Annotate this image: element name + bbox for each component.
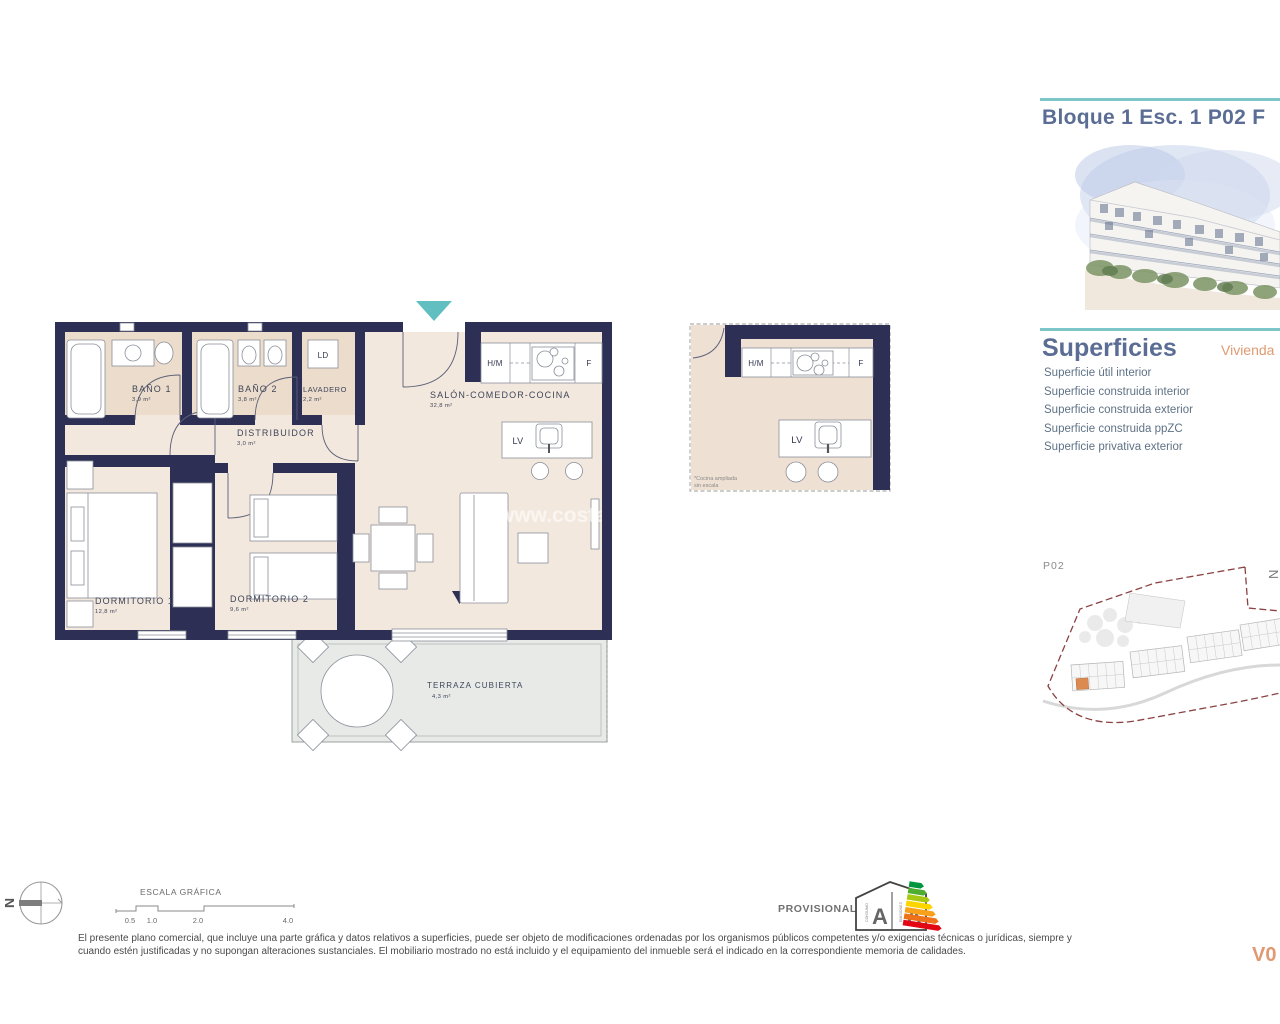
compass-north-letter: N	[5, 898, 17, 908]
bath2-label: BAÑO 2	[238, 384, 278, 394]
superficies-column-label: Vivienda	[1221, 342, 1274, 358]
superficies-item: Superficie construida ppZC	[1044, 420, 1193, 439]
siteplan-north-icon: N	[1266, 570, 1280, 579]
superficies-heading: Superficies	[1042, 334, 1177, 363]
siteplan-cluster	[1240, 617, 1280, 651]
living-label: SALÓN-COMEDOR-COCINA	[430, 390, 571, 400]
north-compass: N	[5, 878, 75, 933]
bath2-area: 3,8 m²	[238, 397, 257, 403]
detail-counter: H/M F	[742, 348, 873, 377]
superficies-item: Superficie construida interior	[1044, 383, 1193, 402]
disclaimer-line1: El presente plano comercial, que incluye…	[78, 933, 1072, 944]
emisiones-label: EMISIONES	[899, 901, 903, 922]
energy-letter-left: A	[872, 904, 888, 929]
terrace: TERRAZA CUBIERTA 4,3 m²	[292, 631, 607, 750]
laundry-fixtures: LD	[308, 340, 338, 368]
energy-certificate-icon: CONSUMO A EMISIONES A	[846, 874, 946, 936]
living-area: 32,8 m²	[430, 403, 452, 409]
disclaimer-line2: cuando estén justificadas y no supongan …	[78, 946, 966, 957]
scale-bar: ESCALA GRÁFICA 0.5 1.0 2.0 4.0	[108, 882, 318, 930]
laundry-label: LAVADERO	[303, 385, 347, 394]
bath1-area: 3,9 m²	[132, 397, 151, 403]
detail-fridge-label: F	[858, 359, 863, 368]
detail-note-line1: *Cocina ampliada	[694, 476, 738, 482]
header-rule	[1040, 98, 1280, 101]
terrace-label: TERRAZA CUBIERTA	[427, 681, 523, 690]
detail-oven-label: H/M	[748, 359, 764, 368]
version-label: V0	[1252, 944, 1280, 967]
scalebar-title: ESCALA GRÁFICA	[140, 887, 222, 897]
superficies-item: Superficie construida exterior	[1044, 401, 1193, 420]
kitchen-detail-plan: H/M F LV *Cocina ampliada sin escala	[687, 322, 895, 498]
ld-label: LD	[318, 351, 329, 360]
terrace-area: 4,3 m²	[432, 694, 451, 700]
superficies-item: Superficie privativa exterior	[1044, 438, 1193, 457]
superficies-list: Superficie útil interior Superficie cons…	[1044, 364, 1193, 457]
laundry-area: 2,2 m²	[303, 397, 322, 403]
scalebar-tick: 0.5	[125, 916, 135, 925]
siteplan-pool-building	[1125, 593, 1185, 628]
detail-note-line2: sin escala	[694, 483, 719, 489]
bedroom1-area: 12,8 m²	[95, 609, 117, 615]
page-title: Bloque 1 Esc. 1 P02 F	[1042, 106, 1265, 130]
consumo-label: CONSUMO	[865, 903, 869, 922]
bedroom2-area: 9,6 m²	[230, 607, 249, 613]
scalebar-tick: 4.0	[283, 916, 293, 925]
bedroom1-label: DORMITORIO 1	[95, 596, 174, 606]
scalebar-line	[116, 906, 294, 911]
main-floor-plan: TERRAZA CUBIERTA 4,3 m²	[40, 295, 630, 760]
siteplan-cluster	[1130, 646, 1185, 678]
dishwasher-label: LV	[513, 436, 524, 446]
scalebar-tick: 1.0	[147, 916, 157, 925]
bedroom2-label: DORMITORIO 2	[230, 594, 309, 604]
oven-label: H/M	[487, 359, 503, 368]
hall-area: 3,0 m²	[237, 441, 256, 447]
building-render-image	[1075, 140, 1280, 310]
fridge-label: F	[586, 359, 591, 368]
scalebar-tick: 2.0	[193, 916, 203, 925]
siteplan-cluster	[1071, 661, 1125, 691]
siteplan-label: P02	[1043, 560, 1065, 572]
superficies-item: Superficie útil interior	[1044, 364, 1193, 383]
entrance-arrow-icon	[416, 301, 452, 321]
superficies-rule	[1040, 328, 1280, 331]
bath1-label: BAÑO 1	[132, 384, 172, 394]
highlighted-unit	[1076, 678, 1089, 690]
siteplan-cluster	[1187, 630, 1242, 663]
site-plan: P02 N	[1035, 553, 1280, 740]
hall-label: DISTRIBUIDOR	[237, 428, 315, 438]
detail-dishwasher-label: LV	[791, 435, 803, 446]
energy-arrows-icon	[903, 881, 946, 931]
kitchen-counter: H/M F	[481, 343, 602, 383]
